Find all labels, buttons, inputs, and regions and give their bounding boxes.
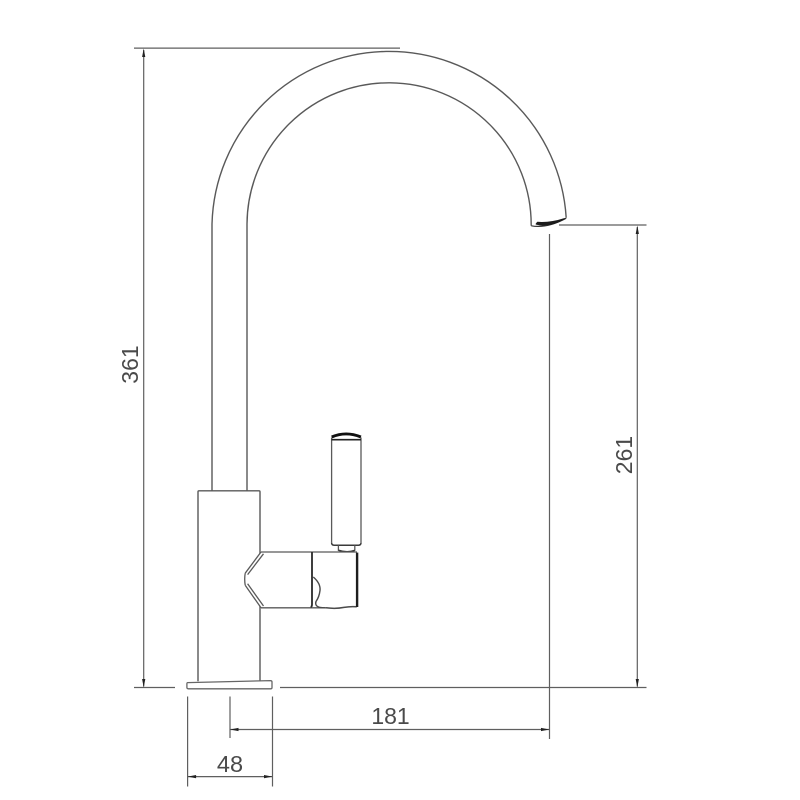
svg-text:261: 261 bbox=[611, 436, 637, 474]
svg-text:361: 361 bbox=[117, 345, 143, 383]
svg-text:48: 48 bbox=[217, 751, 243, 777]
svg-text:181: 181 bbox=[371, 703, 409, 729]
